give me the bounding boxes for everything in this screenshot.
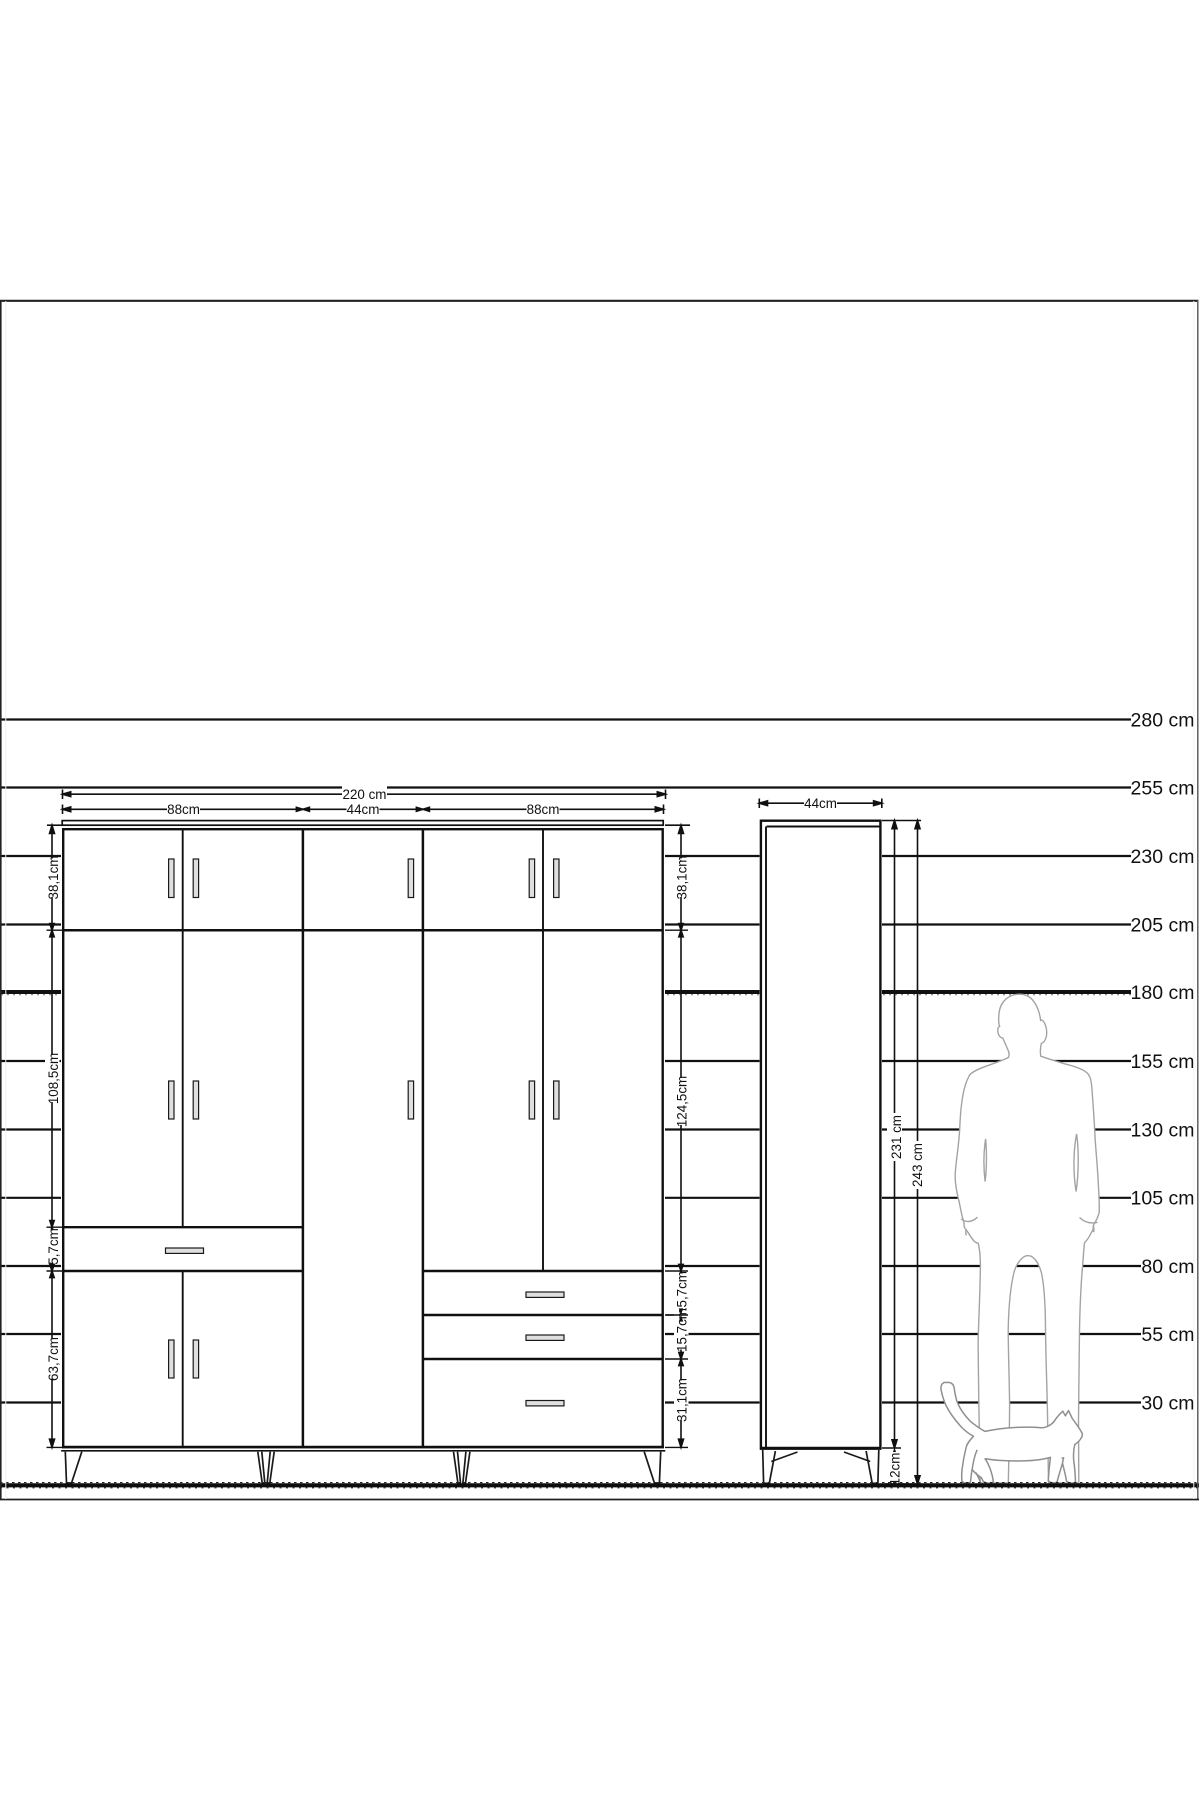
svg-text:130 cm: 130 cm [1131,1119,1195,1141]
svg-text:38,1cm: 38,1cm [46,856,61,900]
svg-text:124,5cm: 124,5cm [674,1076,689,1127]
svg-text:108,5cm: 108,5cm [46,1053,61,1104]
svg-text:88cm: 88cm [527,802,560,817]
svg-text:88cm: 88cm [167,802,200,817]
svg-text:80 cm: 80 cm [1141,1256,1194,1278]
svg-text:180 cm: 180 cm [1131,982,1195,1004]
svg-text:205 cm: 205 cm [1131,914,1195,936]
svg-text:231 cm: 231 cm [889,1115,904,1159]
svg-text:105 cm: 105 cm [1131,1188,1195,1210]
svg-text:55 cm: 55 cm [1141,1324,1194,1346]
svg-text:44cm: 44cm [804,796,837,811]
svg-text:230 cm: 230 cm [1131,846,1195,868]
svg-text:12cm: 12cm [888,1453,903,1486]
svg-text:243 cm: 243 cm [910,1143,925,1187]
svg-text:5,7cm: 5,7cm [46,1228,61,1264]
svg-text:30 cm: 30 cm [1141,1392,1194,1414]
svg-text:38,1cm: 38,1cm [674,856,689,900]
svg-text:220 cm: 220 cm [343,787,387,802]
svg-text:31,1cm: 31,1cm [674,1378,689,1422]
svg-text:63,7cm: 63,7cm [46,1337,61,1381]
svg-text:255 cm: 255 cm [1131,777,1195,799]
svg-text:155 cm: 155 cm [1131,1051,1195,1073]
svg-text:280 cm: 280 cm [1131,709,1195,731]
svg-text:44cm: 44cm [347,802,380,817]
